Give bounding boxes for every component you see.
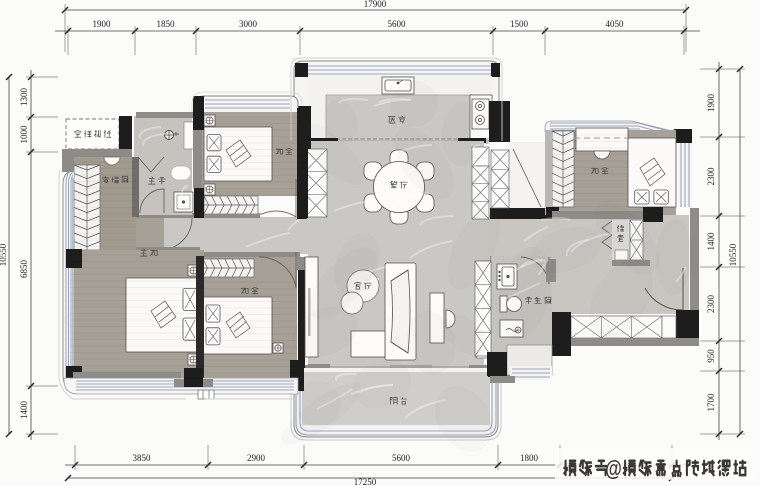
- svg-text:950: 950: [706, 349, 716, 363]
- svg-text:1900: 1900: [93, 19, 112, 29]
- svg-text:1300: 1300: [19, 88, 29, 107]
- svg-text:2300: 2300: [706, 167, 716, 186]
- svg-text:2900: 2900: [247, 453, 266, 463]
- svg-text:6850: 6850: [19, 260, 29, 279]
- svg-text:1900: 1900: [706, 94, 716, 113]
- svg-text:1000: 1000: [19, 125, 29, 144]
- svg-text:5600: 5600: [388, 19, 407, 29]
- svg-text:3000: 3000: [239, 19, 258, 29]
- svg-text:10550: 10550: [728, 243, 738, 266]
- svg-text:@: @: [605, 457, 622, 482]
- svg-text:1800: 1800: [520, 453, 539, 463]
- svg-text:10550: 10550: [0, 243, 8, 266]
- svg-text:5600: 5600: [392, 453, 411, 463]
- svg-text:1500: 1500: [510, 19, 529, 29]
- svg-text:17250: 17250: [354, 477, 377, 486]
- svg-text:1400: 1400: [19, 401, 29, 420]
- svg-text:1700: 1700: [706, 393, 716, 412]
- svg-text:1400: 1400: [706, 232, 716, 251]
- svg-text:4050: 4050: [606, 19, 625, 29]
- svg-text:3850: 3850: [133, 453, 152, 463]
- svg-text:17900: 17900: [364, 0, 387, 9]
- svg-text:1850: 1850: [157, 19, 176, 29]
- svg-text:2300: 2300: [706, 295, 716, 314]
